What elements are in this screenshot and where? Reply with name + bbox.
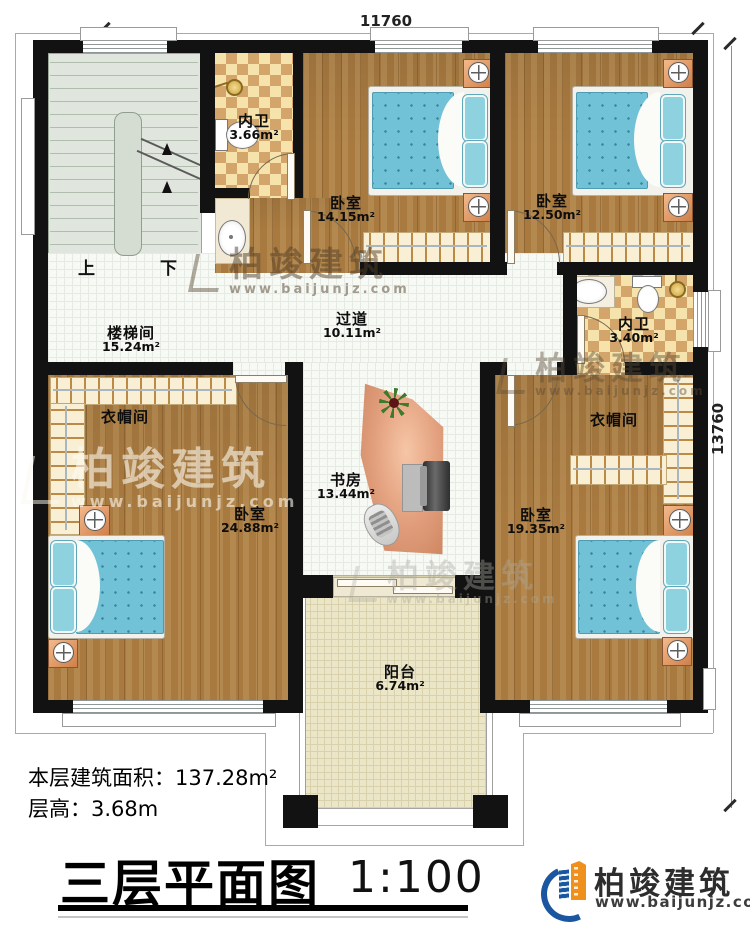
wall bbox=[167, 40, 375, 53]
window-sill bbox=[80, 27, 177, 41]
pillow bbox=[664, 587, 689, 633]
pillow bbox=[51, 541, 76, 587]
pillow bbox=[463, 95, 487, 141]
monitor-screen bbox=[420, 466, 427, 506]
wardrobe bbox=[363, 232, 492, 263]
wall bbox=[33, 700, 73, 713]
closet-rail bbox=[677, 380, 679, 499]
eave-line-balcony-right bbox=[523, 733, 524, 845]
window-sill bbox=[370, 27, 469, 41]
computer-monitor-icon bbox=[423, 461, 450, 511]
door-leaf bbox=[287, 153, 295, 200]
pillow bbox=[661, 141, 685, 187]
floor-area-text: 本层建筑面积：137.28m² bbox=[28, 762, 277, 792]
window bbox=[693, 292, 708, 347]
room-area-bedroom-bottom-right: 19.35m² bbox=[507, 521, 565, 536]
shower-head-icon bbox=[226, 79, 243, 96]
window bbox=[375, 40, 462, 53]
lamp-icon bbox=[669, 509, 691, 531]
lamp-icon bbox=[468, 196, 489, 217]
eave-line-left bbox=[15, 33, 16, 733]
wall bbox=[288, 362, 303, 713]
pillow bbox=[664, 541, 689, 587]
shower-head-icon bbox=[669, 281, 686, 298]
brand-logo-building-orange bbox=[571, 861, 586, 900]
wall bbox=[490, 53, 505, 262]
wall bbox=[48, 362, 233, 375]
window-sill bbox=[21, 98, 35, 235]
title-scale: 1:100 bbox=[348, 852, 485, 903]
stair-down-label: 下 bbox=[160, 254, 177, 279]
lamp-icon bbox=[668, 196, 689, 217]
door-leaf bbox=[303, 210, 311, 264]
dim-tick-right-top bbox=[723, 37, 736, 50]
wall bbox=[495, 362, 507, 375]
wall bbox=[480, 362, 495, 713]
window-sill bbox=[519, 713, 681, 727]
room-label-closet-left: 衣帽间 bbox=[101, 406, 149, 427]
closet-shelf bbox=[50, 377, 237, 405]
wall bbox=[625, 362, 708, 375]
closet-rail bbox=[573, 468, 662, 470]
brand-logo-building-blue bbox=[559, 869, 569, 899]
sink-drain bbox=[229, 235, 233, 239]
title-underline bbox=[58, 905, 468, 911]
wall bbox=[215, 188, 250, 198]
room-area-corridor: 10.11m² bbox=[323, 325, 381, 340]
eave-line-bottom-left bbox=[15, 733, 265, 734]
room-area-balcony: 6.74m² bbox=[375, 678, 424, 693]
room-area-bath-top: 3.66m² bbox=[229, 127, 278, 142]
window bbox=[538, 40, 652, 53]
lamp-icon bbox=[668, 62, 689, 83]
pillow bbox=[463, 141, 487, 187]
brand-url: www.baijunjz.com bbox=[595, 893, 750, 911]
room-area-bedroom-top-mid: 14.15m² bbox=[317, 209, 375, 224]
title-underline-thin bbox=[58, 916, 468, 918]
wall bbox=[693, 347, 708, 713]
plant-pot bbox=[389, 398, 399, 408]
balcony-post-left bbox=[283, 795, 318, 828]
toilet-icon bbox=[637, 285, 659, 313]
balcony-pier-left bbox=[303, 575, 333, 598]
floor-plan-canvas: 11760 13760 bbox=[0, 0, 750, 925]
balcony-railing-bottom bbox=[317, 808, 477, 826]
window-sill bbox=[533, 27, 659, 41]
balcony-pier-right bbox=[455, 575, 495, 598]
wall bbox=[693, 40, 708, 292]
room-label-closet-right: 衣帽间 bbox=[590, 409, 638, 430]
room-area-stairwell: 15.24m² bbox=[102, 339, 160, 354]
stair-direction-arrow-2 bbox=[162, 181, 172, 193]
window-sill bbox=[703, 668, 716, 710]
lamp-icon bbox=[667, 640, 688, 661]
wall bbox=[557, 362, 577, 375]
stair-stringer bbox=[114, 112, 142, 256]
closet-shelf bbox=[570, 455, 667, 485]
pillow bbox=[51, 587, 76, 633]
dim-tick-right-bottom bbox=[723, 799, 736, 812]
room-area-bedroom-top-right: 12.50m² bbox=[523, 207, 581, 222]
door-leaf bbox=[507, 375, 515, 427]
room-area-bath-right: 3.40m² bbox=[609, 330, 658, 345]
wall bbox=[360, 262, 507, 275]
door-leaf bbox=[507, 210, 515, 264]
lamp-icon bbox=[468, 62, 489, 83]
window bbox=[530, 700, 667, 713]
wall bbox=[490, 700, 530, 713]
window-sill bbox=[62, 713, 276, 727]
bedroom-left-door-threshold bbox=[233, 362, 285, 375]
room-area-bedroom-bottom-left: 24.88m² bbox=[221, 520, 279, 535]
stair-up-label: 上 bbox=[78, 254, 95, 279]
dimension-right-label: 13760 bbox=[709, 399, 727, 459]
bedroom-right-door-threshold bbox=[507, 362, 557, 375]
eave-line-right bbox=[713, 33, 714, 733]
wall bbox=[563, 275, 577, 362]
wall bbox=[557, 262, 708, 275]
eave-line-bottom-right bbox=[524, 733, 713, 734]
window bbox=[83, 40, 167, 53]
sliding-door-leaf bbox=[337, 579, 397, 587]
lamp-icon bbox=[84, 509, 106, 531]
window-sill bbox=[708, 290, 721, 352]
window bbox=[73, 700, 263, 713]
stair-direction-arrow-1 bbox=[162, 143, 172, 155]
room-area-study: 13.44m² bbox=[317, 486, 375, 501]
wall bbox=[462, 40, 538, 53]
lamp-icon bbox=[53, 642, 74, 663]
balcony-floor bbox=[302, 575, 492, 813]
door-leaf bbox=[577, 315, 585, 364]
sliding-door-leaf bbox=[393, 586, 453, 594]
wardrobe-rail bbox=[566, 245, 690, 247]
closet-rail bbox=[53, 389, 232, 391]
balcony-post-right bbox=[473, 795, 508, 828]
wardrobe-rail bbox=[366, 245, 487, 247]
dimension-line-right bbox=[731, 46, 732, 808]
closet-shelf bbox=[663, 377, 695, 504]
wall bbox=[667, 700, 708, 713]
wardrobe bbox=[563, 232, 695, 263]
door-leaf bbox=[235, 375, 287, 383]
wall bbox=[33, 40, 48, 713]
floor-height-text: 层高：3.68m bbox=[28, 793, 158, 823]
wall bbox=[200, 53, 215, 213]
pillow bbox=[661, 95, 685, 141]
closet-rail bbox=[65, 406, 67, 530]
